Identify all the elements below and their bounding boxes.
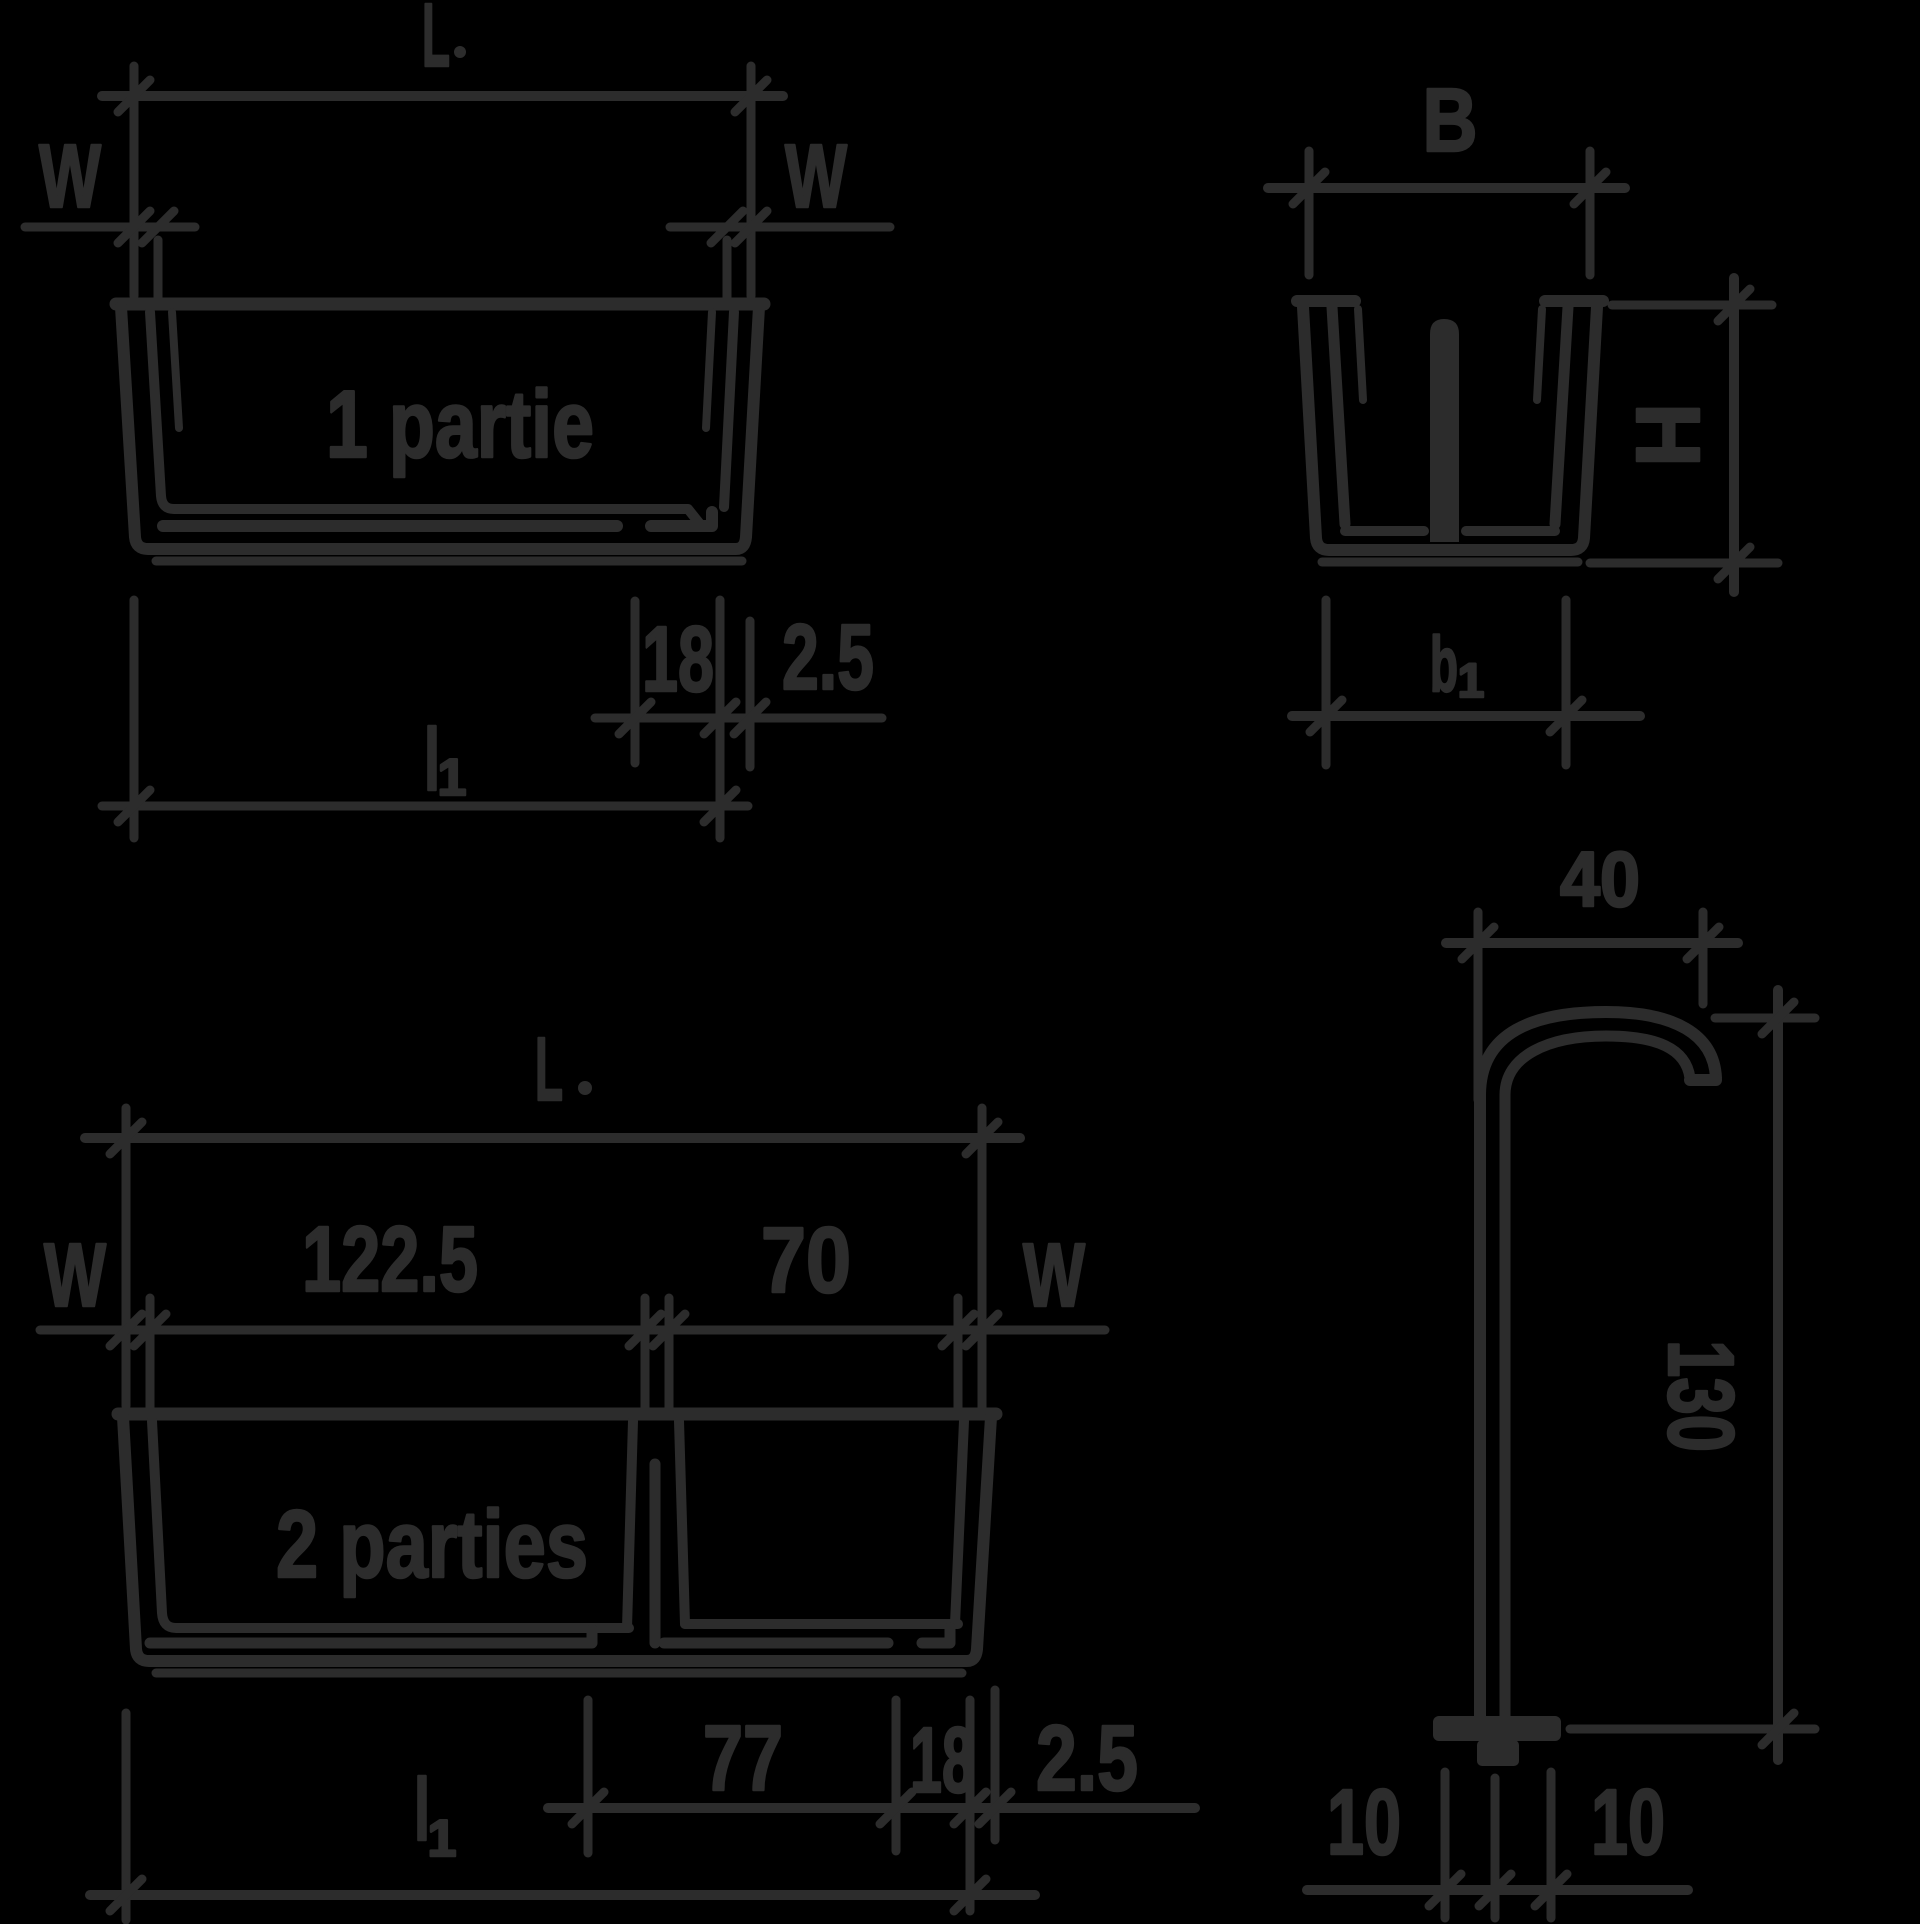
- svg-text:b: b: [1430, 620, 1458, 708]
- svg-text:2.5: 2.5: [782, 605, 874, 709]
- svg-text:40: 40: [1560, 835, 1640, 923]
- svg-text:1: 1: [438, 749, 467, 807]
- svg-text:W: W: [44, 1226, 106, 1326]
- svg-text:L: L: [422, 0, 450, 86]
- svg-text:1: 1: [1458, 655, 1485, 708]
- svg-text:W: W: [39, 127, 101, 227]
- svg-text:10: 10: [1591, 1770, 1665, 1874]
- svg-text:70: 70: [761, 1208, 851, 1312]
- svg-text:122.5: 122.5: [302, 1207, 478, 1311]
- svg-text:18: 18: [642, 607, 714, 711]
- svg-text:2.5: 2.5: [1036, 1706, 1138, 1810]
- svg-text:77: 77: [703, 1706, 783, 1810]
- svg-text:1 partie: 1 partie: [326, 371, 594, 478]
- svg-text:B: B: [1423, 71, 1478, 171]
- svg-text:130: 130: [1649, 1340, 1753, 1452]
- svg-text:W: W: [1023, 1226, 1085, 1326]
- svg-text:H: H: [1617, 403, 1717, 467]
- svg-text:W: W: [785, 127, 847, 227]
- svg-text:L: L: [535, 1020, 563, 1120]
- svg-text:10: 10: [1327, 1770, 1401, 1874]
- svg-text:2 parties: 2 parties: [276, 1491, 588, 1598]
- svg-text:1: 1: [428, 1810, 457, 1868]
- svg-text:18: 18: [910, 1708, 974, 1812]
